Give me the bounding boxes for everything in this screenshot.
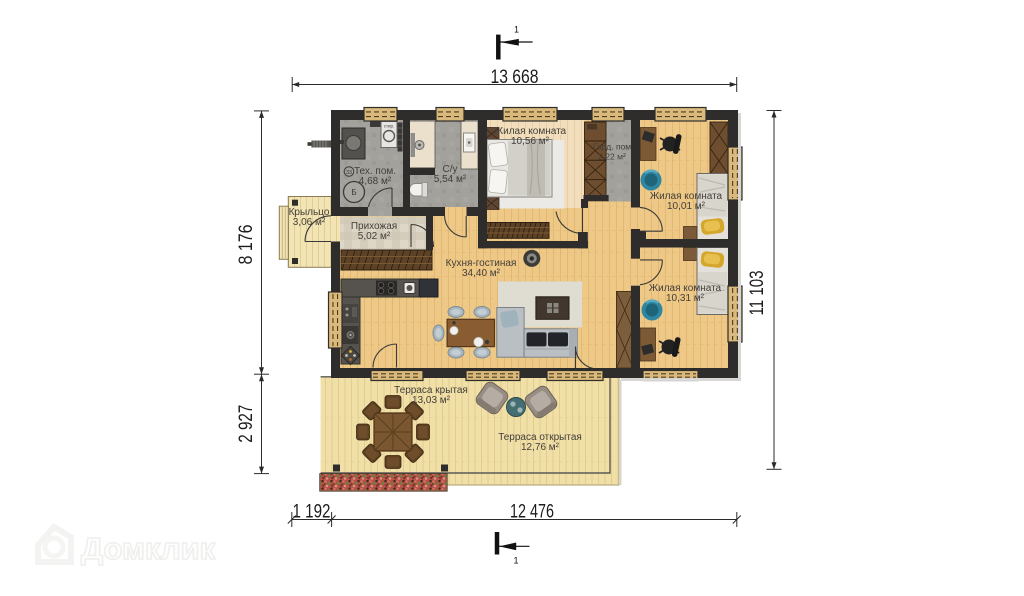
svg-text:11 103: 11 103 bbox=[747, 271, 768, 316]
svg-text:13,03 м²: 13,03 м² bbox=[412, 395, 451, 406]
svg-text:12 476: 12 476 bbox=[510, 502, 554, 523]
svg-text:5,54 м²: 5,54 м² bbox=[434, 174, 467, 185]
svg-text:33: 33 bbox=[346, 170, 352, 176]
svg-text:Б: Б bbox=[351, 188, 356, 197]
svg-text:5,02 м²: 5,02 м² bbox=[358, 231, 391, 242]
svg-text:2,22 м²: 2,22 м² bbox=[598, 152, 626, 162]
svg-text:стир.: стир. bbox=[384, 124, 395, 129]
svg-text:2 927: 2 927 bbox=[236, 405, 257, 443]
svg-text:13 668: 13 668 bbox=[491, 67, 539, 88]
svg-text:1 192: 1 192 bbox=[293, 502, 331, 523]
svg-text:1: 1 bbox=[514, 25, 519, 35]
svg-text:10,01 м²: 10,01 м² bbox=[667, 201, 706, 212]
svg-text:34,40 м²: 34,40 м² bbox=[462, 268, 501, 279]
svg-text:Гард. пом: Гард. пом bbox=[593, 142, 631, 152]
svg-text:12,76 м²: 12,76 м² bbox=[521, 442, 560, 453]
svg-text:10,56 м²: 10,56 м² bbox=[511, 136, 550, 147]
svg-text:10,31 м²: 10,31 м² bbox=[666, 293, 705, 304]
svg-text:8 176: 8 176 bbox=[236, 225, 257, 265]
svg-text:3,06 м²: 3,06 м² bbox=[293, 217, 326, 228]
svg-text:1: 1 bbox=[513, 556, 518, 566]
svg-text:Домклик: Домклик bbox=[81, 531, 216, 566]
svg-text:4,68 м²: 4,68 м² bbox=[359, 176, 392, 187]
